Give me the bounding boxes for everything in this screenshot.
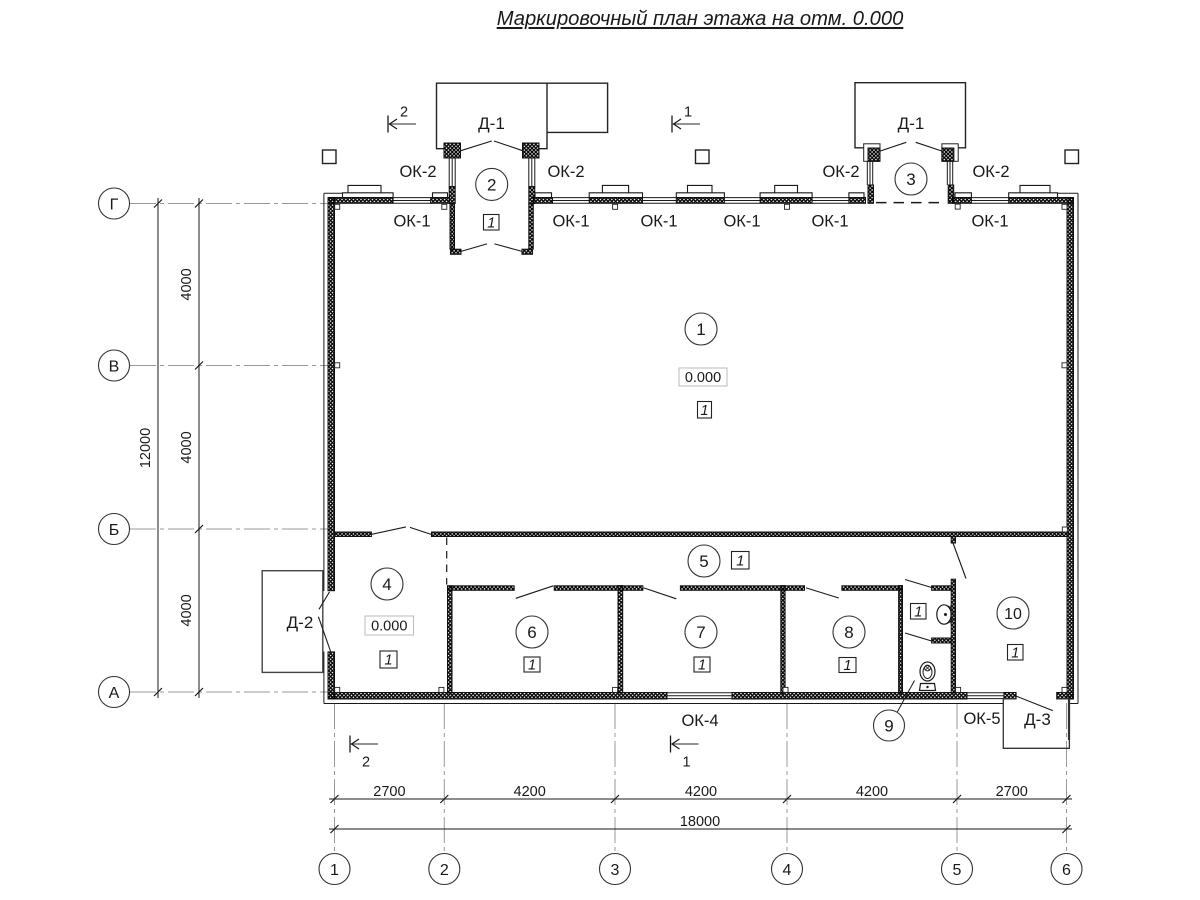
svg-text:1: 1 (384, 653, 392, 669)
svg-text:1: 1 (682, 755, 690, 771)
svg-text:1: 1 (736, 553, 744, 569)
svg-text:Д-3: Д-3 (1024, 710, 1051, 729)
svg-text:1: 1 (330, 862, 339, 879)
svg-text:ОК-4: ОК-4 (681, 712, 718, 730)
svg-text:ОК-5: ОК-5 (963, 710, 1000, 728)
svg-text:1: 1 (843, 658, 851, 674)
svg-text:10: 10 (1004, 606, 1022, 623)
svg-text:2700: 2700 (373, 784, 405, 800)
svg-text:4000: 4000 (179, 594, 195, 626)
svg-text:ОК-2: ОК-2 (399, 163, 436, 181)
svg-text:Б: Б (109, 522, 120, 539)
svg-text:2: 2 (362, 755, 370, 771)
svg-text:1: 1 (684, 105, 692, 121)
svg-text:4200: 4200 (514, 784, 546, 800)
svg-text:В: В (109, 358, 120, 375)
svg-text:1: 1 (487, 215, 495, 231)
svg-text:ОК-1: ОК-1 (811, 213, 848, 231)
svg-text:8: 8 (844, 623, 853, 642)
svg-text:1: 1 (1011, 645, 1019, 661)
svg-text:ОК-1: ОК-1 (971, 213, 1008, 231)
svg-text:3: 3 (611, 862, 620, 879)
svg-text:Д-1: Д-1 (898, 114, 925, 133)
svg-text:ОК-1: ОК-1 (640, 213, 677, 231)
svg-text:2: 2 (487, 176, 496, 195)
svg-text:ОК-1: ОК-1 (723, 213, 760, 231)
svg-text:1: 1 (914, 604, 922, 620)
svg-text:Г: Г (110, 196, 119, 213)
svg-text:6: 6 (527, 623, 536, 642)
svg-text:6: 6 (1062, 862, 1071, 879)
svg-text:ОК-1: ОК-1 (393, 213, 430, 231)
svg-text:ОК-2: ОК-2 (547, 163, 584, 181)
svg-text:ОК-2: ОК-2 (972, 163, 1009, 181)
svg-text:4200: 4200 (856, 784, 888, 800)
svg-text:1: 1 (528, 658, 536, 674)
svg-text:5: 5 (953, 862, 962, 879)
svg-text:12000: 12000 (138, 428, 154, 468)
svg-text:5: 5 (699, 552, 708, 571)
svg-text:4: 4 (382, 575, 391, 594)
svg-text:2: 2 (440, 862, 449, 879)
svg-text:1: 1 (696, 320, 705, 339)
svg-text:18000: 18000 (680, 814, 720, 830)
svg-text:4: 4 (783, 862, 792, 879)
svg-text:Маркировочный план этажа на от: Маркировочный план этажа на отм. 0.000 (497, 8, 904, 30)
svg-text:4200: 4200 (685, 784, 717, 800)
svg-text:9: 9 (884, 717, 893, 736)
svg-text:ОК-2: ОК-2 (822, 163, 859, 181)
svg-text:ОК-1: ОК-1 (552, 213, 589, 231)
svg-text:0.000: 0.000 (371, 619, 407, 635)
svg-text:4000: 4000 (179, 268, 195, 300)
svg-text:0.000: 0.000 (685, 370, 721, 386)
svg-text:2700: 2700 (996, 784, 1028, 800)
svg-text:Д-2: Д-2 (287, 613, 314, 632)
svg-text:1: 1 (700, 403, 708, 419)
svg-text:7: 7 (696, 623, 705, 642)
svg-text:1: 1 (698, 658, 706, 674)
svg-text:2: 2 (400, 105, 408, 121)
svg-text:4000: 4000 (179, 431, 195, 463)
svg-text:А: А (109, 685, 120, 702)
svg-text:3: 3 (906, 170, 915, 189)
svg-text:Д-1: Д-1 (478, 114, 505, 133)
